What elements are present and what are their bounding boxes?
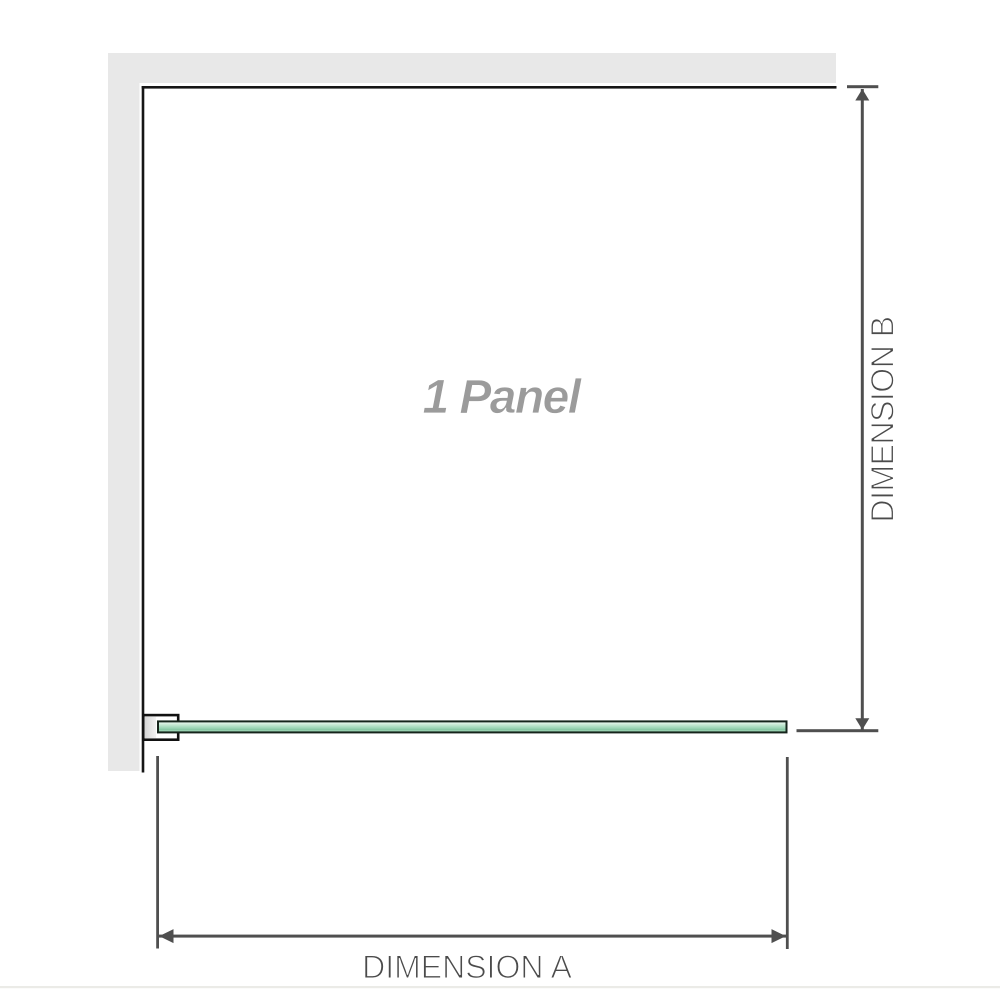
svg-text:DIMENSION A: DIMENSION A	[362, 949, 572, 985]
svg-text:1 Panel: 1 Panel	[423, 371, 583, 424]
svg-text:DIMENSION B: DIMENSION B	[865, 316, 901, 522]
